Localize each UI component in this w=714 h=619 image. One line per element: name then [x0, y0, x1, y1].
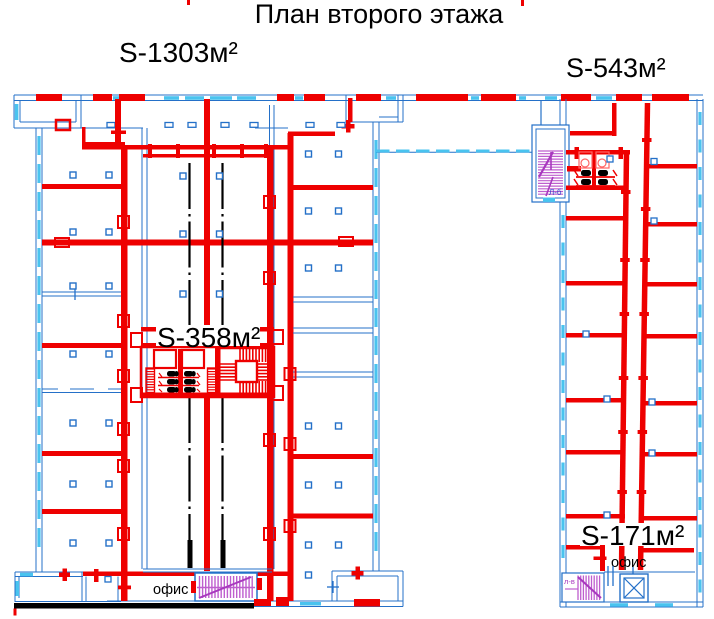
- svg-text:Л-б: Л-б: [549, 188, 562, 197]
- svg-text:S-358м²: S-358м²: [157, 322, 260, 353]
- svg-text:S-171м²: S-171м²: [581, 520, 684, 551]
- svg-text:офис: офис: [611, 555, 646, 571]
- svg-text:офис: офис: [153, 582, 188, 598]
- svg-text:л-в: л-в: [564, 577, 575, 586]
- svg-text:S-543м²: S-543м²: [566, 53, 666, 83]
- svg-text:План второго этажа: План второго этажа: [255, 0, 505, 29]
- svg-text:S-1303м²: S-1303м²: [119, 37, 238, 68]
